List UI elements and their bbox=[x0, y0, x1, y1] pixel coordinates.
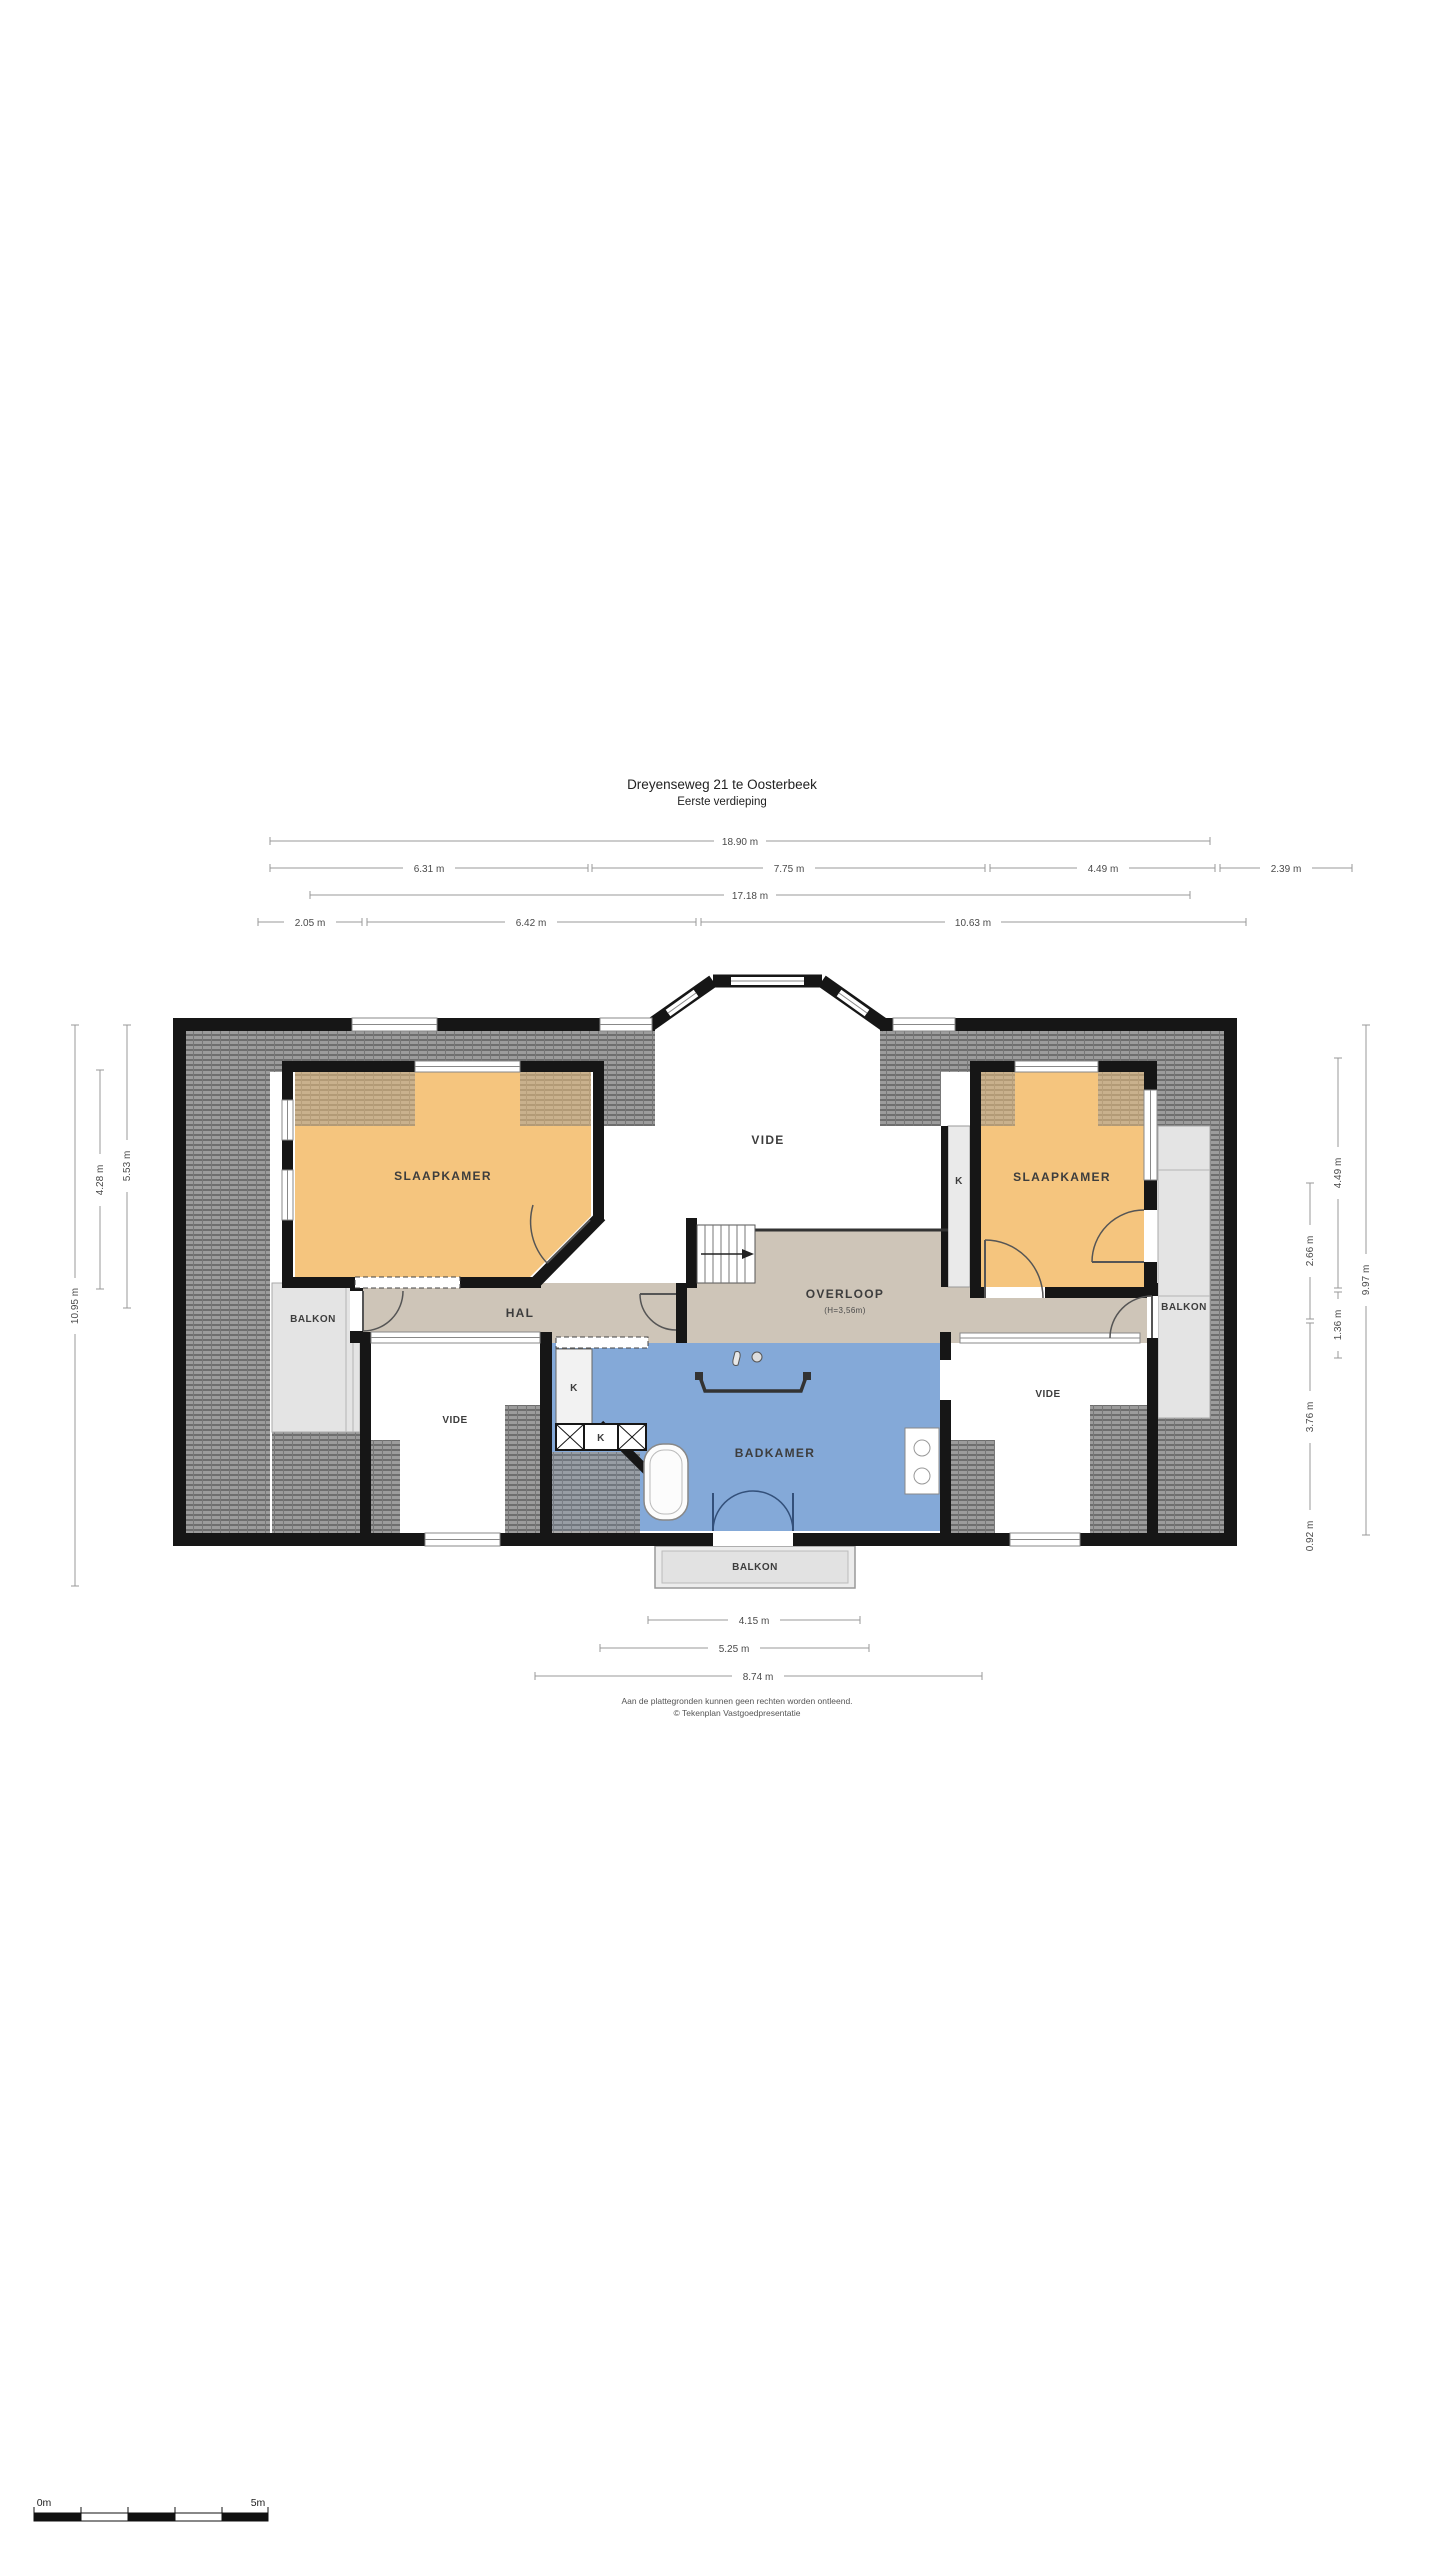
closet-right bbox=[948, 1126, 970, 1287]
label-badkamer: BADKAMER bbox=[735, 1446, 815, 1460]
plan-title: Dreyenseweg 21 te Oosterbeek Eerste verd… bbox=[627, 777, 817, 808]
label-hal: HAL bbox=[506, 1306, 535, 1320]
label-balkon-right: BALKON bbox=[1161, 1302, 1207, 1313]
top-dimension-labels: 18.90 m 6.31 m 7.75 m 4.49 m 2.39 m 17.1… bbox=[284, 835, 1312, 929]
label-overloop: OVERLOOP bbox=[806, 1287, 884, 1301]
dim-bottom-b: 5.25 m bbox=[719, 1644, 750, 1655]
dim-right-e: 1.36 m bbox=[1333, 1310, 1344, 1341]
label-balkon-left: BALKON bbox=[290, 1314, 336, 1325]
label-vide-top: VIDE bbox=[751, 1133, 784, 1147]
bay-window bbox=[649, 981, 886, 1030]
dim-bottom-c: 8.74 m bbox=[743, 1672, 774, 1683]
bathtub bbox=[644, 1444, 688, 1520]
dim-width-e: 2.05 m bbox=[295, 918, 326, 929]
dim-left-a: 5.53 m bbox=[122, 1151, 133, 1182]
dim-right-total: 9.97 m bbox=[1361, 1265, 1372, 1296]
title-floor: Eerste verdieping bbox=[677, 796, 767, 808]
scale-bar: 0m 5m bbox=[34, 2497, 268, 2521]
title-address: Dreyenseweg 21 te Oosterbeek bbox=[627, 777, 817, 792]
staircase bbox=[697, 1225, 755, 1283]
label-balkon-bottom: BALKON bbox=[732, 1562, 778, 1573]
dim-left-b: 4.28 m bbox=[95, 1165, 106, 1196]
copyright-text: © Tekenplan Vastgoedpresentatie bbox=[674, 1708, 801, 1718]
dim-right-a: 2.66 m bbox=[1305, 1236, 1316, 1267]
dim-width-a: 6.31 m bbox=[414, 864, 445, 875]
balcony-left bbox=[272, 1283, 360, 1432]
disclaimer-text: Aan de plattegronden kunnen geen rechten… bbox=[621, 1696, 852, 1706]
label-slaapkamer-left: SLAAPKAMER bbox=[394, 1169, 492, 1183]
dim-width-b: 7.75 m bbox=[774, 864, 805, 875]
dashed-window-bath bbox=[556, 1337, 648, 1348]
scale-start-label: 0m bbox=[37, 2497, 52, 2509]
floor-plan: SLAAPKAMER SLAAPKAMER VIDE VIDE VIDE HAL… bbox=[173, 981, 1237, 1588]
dim-right-b: 3.76 m bbox=[1305, 1402, 1316, 1433]
balcony-right bbox=[1158, 1126, 1210, 1418]
label-vide-right: VIDE bbox=[1035, 1389, 1060, 1400]
dim-right-d: 4.49 m bbox=[1333, 1158, 1344, 1189]
label-closet-bath: K bbox=[570, 1383, 578, 1394]
roof-overlap-bathroom bbox=[552, 1452, 640, 1533]
dim-width-c: 4.49 m bbox=[1088, 864, 1119, 875]
dim-right-c: 0.92 m bbox=[1305, 1521, 1316, 1552]
dim-width-d: 2.39 m bbox=[1271, 864, 1302, 875]
left-dimension-labels: 5.53 m 4.28 m 10.95 m bbox=[69, 1140, 133, 1334]
drain-icon bbox=[752, 1352, 762, 1362]
dim-width-g: 10.63 m bbox=[955, 918, 991, 929]
floorplan-drawing: Dreyenseweg 21 te Oosterbeek Eerste verd… bbox=[0, 0, 1440, 2560]
dim-left-total: 10.95 m bbox=[70, 1288, 81, 1324]
label-closet-right: K bbox=[955, 1176, 963, 1187]
dashed-window-left bbox=[355, 1277, 460, 1288]
dim-width-f: 6.42 m bbox=[516, 918, 547, 929]
footnote: Aan de plattegronden kunnen geen rechten… bbox=[621, 1696, 852, 1718]
dim-bottom-a: 4.15 m bbox=[739, 1616, 770, 1627]
label-closet-small: K bbox=[597, 1433, 605, 1444]
floorplan-page: Dreyenseweg 21 te Oosterbeek Eerste verd… bbox=[0, 0, 1440, 2560]
scale-end-label: 5m bbox=[251, 2497, 266, 2509]
dim-width-mid: 17.18 m bbox=[732, 891, 768, 902]
dim-width-total: 18.90 m bbox=[722, 837, 758, 848]
label-overloop-height: (H=3,56m) bbox=[824, 1306, 866, 1315]
label-vide-left: VIDE bbox=[442, 1415, 467, 1426]
label-slaapkamer-right: SLAAPKAMER bbox=[1013, 1170, 1111, 1184]
top-dimensions bbox=[258, 837, 1352, 926]
